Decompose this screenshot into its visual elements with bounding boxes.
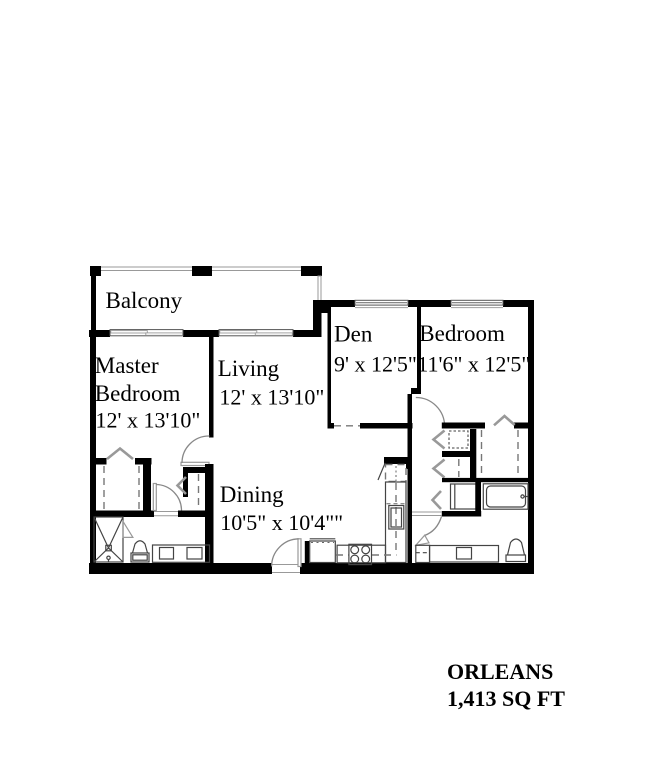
svg-text:Den: Den xyxy=(334,322,373,347)
svg-text:Bedroom: Bedroom xyxy=(419,321,505,346)
svg-text:10'5" x 10'4"": 10'5" x 10'4"" xyxy=(220,510,343,535)
svg-text:Bedroom: Bedroom xyxy=(95,381,181,406)
svg-text:Living: Living xyxy=(218,356,280,381)
svg-text:Dining: Dining xyxy=(220,482,284,507)
svg-text:Balcony: Balcony xyxy=(106,288,183,313)
svg-text:ORLEANS: ORLEANS xyxy=(447,659,553,684)
svg-text:9' x 12'5": 9' x 12'5" xyxy=(334,352,417,377)
svg-text:11'6" x 12'5": 11'6" x 12'5" xyxy=(417,352,530,377)
svg-text:Master: Master xyxy=(95,353,159,378)
svg-text:12' x 13'10": 12' x 13'10" xyxy=(96,408,201,433)
svg-text:12' x 13'10": 12' x 13'10" xyxy=(219,384,324,409)
svg-text:1,413 SQ FT: 1,413 SQ FT xyxy=(447,686,565,711)
